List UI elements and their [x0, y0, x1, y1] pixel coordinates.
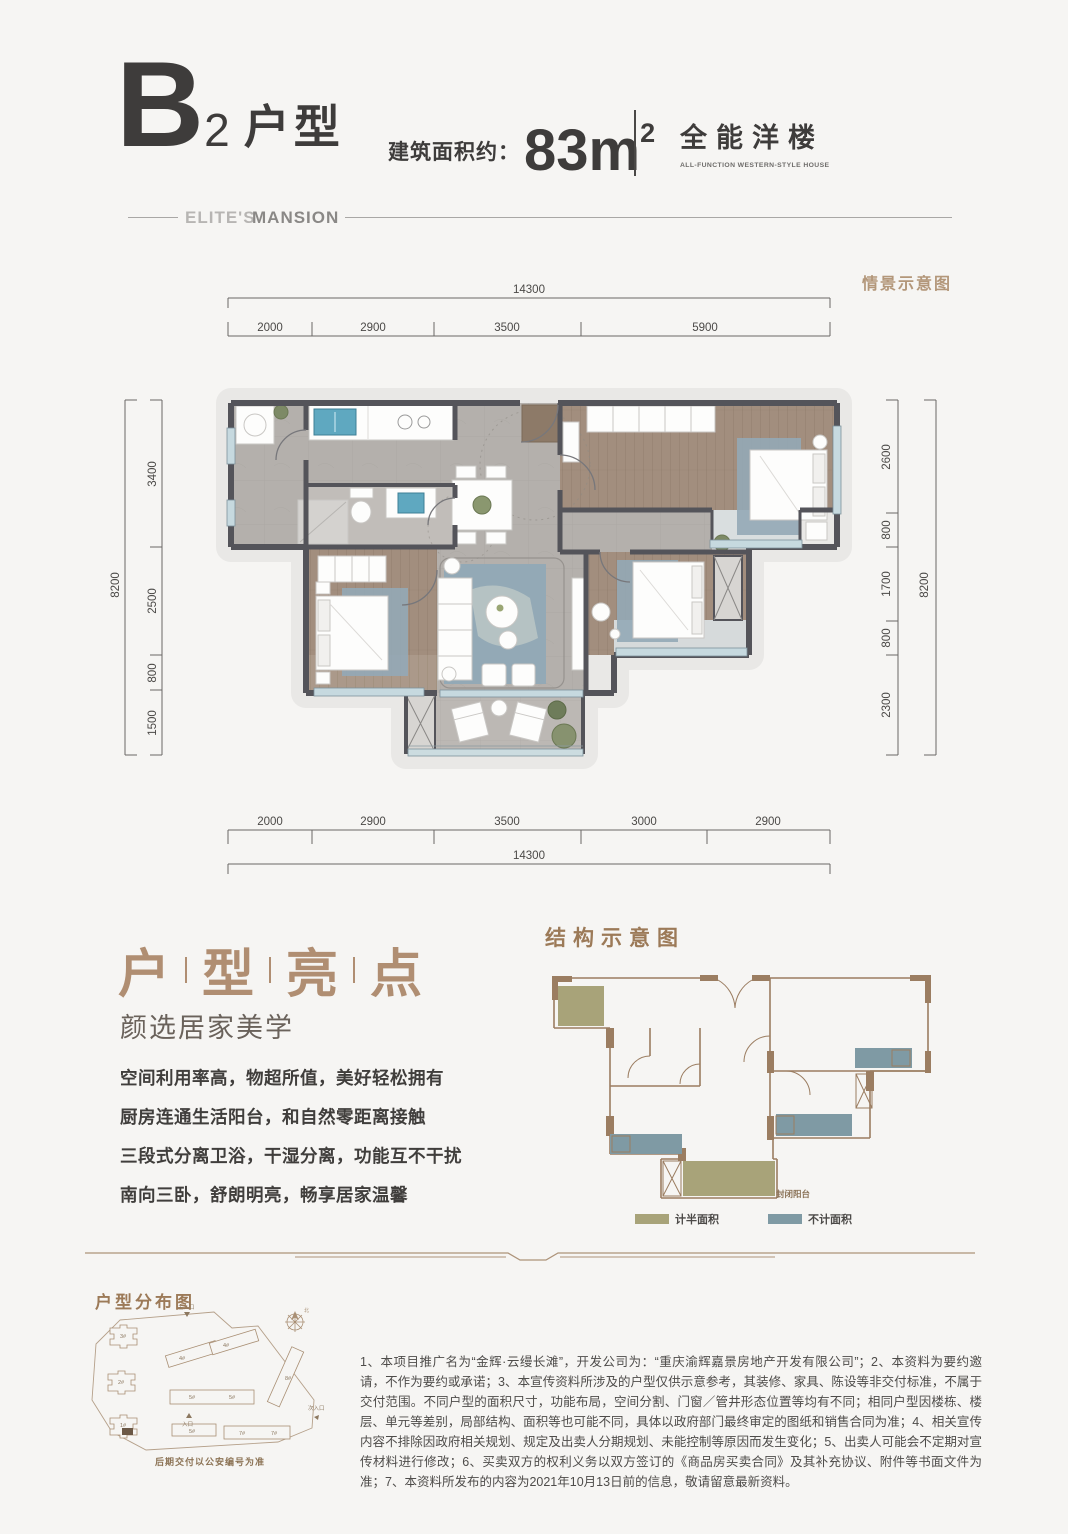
toilet-tank	[350, 488, 373, 498]
tv-console	[572, 578, 584, 670]
coffee-table-small	[499, 631, 517, 649]
dining-chair	[456, 466, 476, 478]
balcony-label: 封闭阳台	[776, 1188, 810, 1200]
brand-elites: ELITE'S	[185, 208, 256, 228]
dining-chair	[486, 466, 506, 478]
svg-text:2900: 2900	[360, 816, 386, 828]
highlight-line: 厨房连通生活阳台，和自然零距离接触	[120, 1104, 540, 1129]
site-map: 北 3# 2# 1# 4# 4# 5# 5# 5# 7# 7# 8#	[82, 1302, 338, 1452]
type-letter: B	[116, 48, 202, 161]
category-block: 全能洋楼 ALL-FUNCTION WESTERN-STYLE HOUSE	[680, 116, 830, 169]
dining-chair	[486, 532, 506, 544]
svg-text:4#: 4#	[223, 1343, 230, 1349]
nightstand	[316, 582, 330, 594]
bedroom2-table	[610, 629, 620, 639]
entrance-top-label: 主入口	[178, 1303, 195, 1311]
title-separator	[269, 957, 271, 983]
sofa	[438, 578, 472, 680]
svg-text:800: 800	[881, 628, 893, 647]
svg-text:5#: 5#	[189, 1395, 196, 1401]
floor-plan: 14300 2000 2900 3500 5900 2000 2900 3500…	[0, 260, 1068, 905]
bay-window-left	[610, 1134, 682, 1154]
plant	[552, 724, 576, 748]
building	[224, 1426, 290, 1439]
legend-half-swatch	[635, 1214, 669, 1224]
header-divider	[634, 110, 636, 176]
category-en: ALL-FUNCTION WESTERN-STYLE HOUSE	[680, 162, 830, 169]
dim-bottom-total: 14300	[513, 850, 545, 862]
svg-text:3500: 3500	[494, 816, 520, 828]
disclaimer-text: 1、本项目推广名为“金辉·云缦长滩”，开发公司为：“重庆渝辉嘉景房地产开发有限公…	[360, 1352, 982, 1492]
svg-text:北: 北	[304, 1307, 309, 1314]
building	[170, 1390, 254, 1404]
svg-text:800: 800	[881, 520, 893, 539]
highlight-line: 南向三卧，舒朗明亮，畅享居家温馨	[120, 1182, 540, 1207]
svg-text:4#: 4#	[179, 1356, 186, 1362]
svg-text:5#: 5#	[229, 1395, 236, 1401]
unit-type-title: B 2 户型	[116, 48, 344, 161]
title-separator	[353, 957, 355, 983]
legend-none: 不计面积	[768, 1211, 852, 1227]
type-number: 2	[204, 103, 230, 157]
dining-chair	[456, 532, 476, 544]
half-area-balcony	[683, 1161, 775, 1196]
dim-right-total: 8200	[919, 572, 931, 598]
entrance-bottom-arrow	[186, 1413, 192, 1418]
svg-text:1500: 1500	[147, 710, 159, 736]
category-cn: 全能洋楼	[680, 116, 830, 155]
side-table	[442, 667, 456, 681]
highlight-line: 三段式分离卫浴，干湿分离，功能互不干扰	[120, 1143, 540, 1168]
highlight-line: 空间利用率高，物超所值，美好轻松拥有	[120, 1065, 540, 1090]
master-bench	[806, 522, 827, 540]
entrance-right-label: 次入口	[308, 1404, 325, 1412]
svg-text:7#: 7#	[271, 1431, 278, 1437]
brand-mansion: MANSION	[252, 208, 339, 228]
dim-top-total: 14300	[513, 284, 545, 296]
building	[209, 1329, 258, 1355]
svg-text:7#: 7#	[239, 1431, 246, 1437]
svg-text:3500: 3500	[494, 322, 520, 334]
compass-icon	[285, 1312, 305, 1332]
svg-text:3000: 3000	[631, 816, 657, 828]
bedroom2-chair	[592, 603, 610, 621]
svg-text:1700: 1700	[881, 571, 893, 597]
pouf	[482, 664, 506, 686]
svg-text:3400: 3400	[147, 461, 159, 487]
svg-text:2900: 2900	[755, 816, 781, 828]
balcony-table	[491, 700, 507, 716]
highlights-title: 户型亮点	[118, 932, 422, 1007]
svg-text:5900: 5900	[692, 322, 718, 334]
area-label: 建筑面积约：	[388, 136, 520, 166]
entrance-bottom-label: 入口	[182, 1421, 193, 1428]
plant	[548, 701, 566, 719]
area-value: 83m	[524, 126, 640, 175]
floor-lamp	[444, 558, 460, 574]
svg-text:2500: 2500	[147, 588, 159, 614]
washer	[236, 406, 274, 444]
brochure-page: B 2 户型 建筑面积约： 83m 2 全能洋楼 ALL-FUNCTION WE…	[0, 0, 1068, 1534]
svg-text:2000: 2000	[257, 322, 283, 334]
svg-text:1#: 1#	[120, 1423, 127, 1429]
legend-none-swatch	[768, 1214, 802, 1224]
legend-half: 计半面积	[635, 1211, 719, 1227]
master-lamp	[813, 435, 827, 449]
half-area-room	[558, 986, 604, 1026]
svg-text:2900: 2900	[360, 322, 386, 334]
master-wardrobe	[587, 406, 715, 432]
entrance-right-arrow	[314, 1415, 319, 1420]
nightstand	[316, 672, 330, 684]
site-map-caption: 后期交付以公安编号为准	[82, 1455, 338, 1468]
coffee-table	[486, 596, 518, 628]
svg-text:5#: 5#	[189, 1429, 196, 1435]
plant	[274, 405, 288, 419]
svg-text:2600: 2600	[881, 444, 893, 470]
toilet	[351, 501, 371, 523]
svg-text:2300: 2300	[881, 692, 893, 718]
highlights-subtitle: 颜选居家美学	[120, 1006, 294, 1045]
built-area: 建筑面积约： 83m 2	[388, 118, 655, 175]
structure-diagram	[540, 956, 940, 1206]
highlighted-unit-marker	[122, 1428, 133, 1435]
svg-text:800: 800	[147, 663, 159, 682]
brand-row: ELITE'S MANSION	[0, 208, 1068, 228]
bay-window-right	[855, 1048, 912, 1068]
svg-text:2000: 2000	[257, 816, 283, 828]
divider-ornament	[0, 1248, 1068, 1266]
svg-text:3#: 3#	[120, 1334, 127, 1340]
structure-title: 结构示意图	[545, 922, 685, 952]
svg-text:8#: 8#	[285, 1376, 292, 1382]
title-separator	[185, 957, 187, 983]
svg-text:2#: 2#	[118, 1380, 125, 1386]
pouf	[512, 664, 535, 686]
type-name: 户型	[244, 91, 344, 157]
area-superscript: 2	[640, 118, 655, 149]
dim-left-total: 8200	[110, 572, 122, 598]
brand-line-right	[345, 217, 952, 218]
brand-line-left	[128, 217, 178, 218]
bay-window-mid	[776, 1114, 852, 1136]
